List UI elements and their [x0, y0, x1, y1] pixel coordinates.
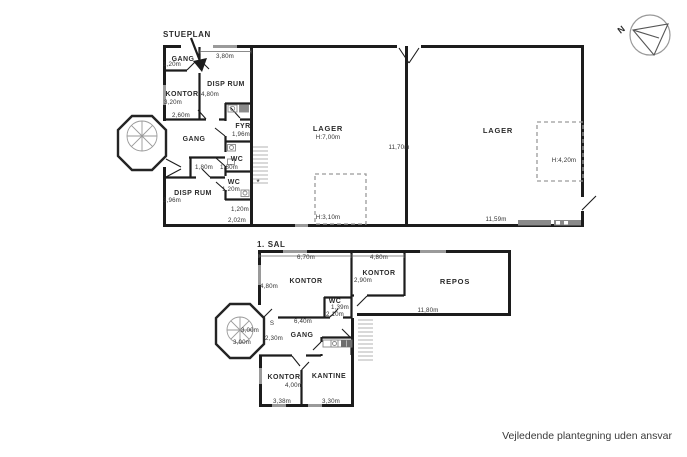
dim-kontor-s: 4,00m — [285, 382, 303, 389]
dim-gang: 2,30m — [265, 335, 283, 342]
dim-kontor-n-h: 2,90m — [354, 277, 372, 284]
room-label-disp-top: DISP RUM — [207, 81, 245, 88]
sink-icon — [331, 340, 338, 347]
dim-tower-a: 3,00m — [241, 327, 259, 334]
room-label-kontor-n: KONTOR — [363, 270, 396, 277]
room-label-lager-right: LAGER — [483, 126, 513, 135]
spiral-stair-treads — [127, 121, 157, 151]
room-label-disp-low: DISP RUM — [174, 190, 212, 197]
dim-wc1-b: 1,80m — [220, 164, 238, 171]
dim-gang-top: 1,20m — [163, 61, 181, 68]
boiler-icon — [240, 105, 249, 112]
gang-s-marker: S — [270, 320, 274, 327]
sal-stairs — [358, 320, 373, 360]
loading-gates — [518, 220, 581, 226]
dim-wc1-a: 1,80m — [195, 164, 213, 171]
room-label-kontor: KONTOR — [166, 91, 199, 98]
dim-repos-w: 11,80m — [417, 307, 438, 314]
stove-icon — [341, 340, 347, 347]
mezzanine-right-dashed — [537, 122, 583, 181]
room-label-kontor-nw: KONTOR — [290, 278, 323, 285]
sal-plan: 1. SAL 6,70m KONTOR 4,80m 4,80m KONTOR 2… — [216, 240, 511, 407]
room-label-kontor-s: KONTOR — [268, 374, 301, 381]
dim-lager-depth: 11,70m — [388, 144, 409, 151]
dim-wc-a: 1,39m — [331, 304, 349, 311]
room-label-gang-mid: GANG — [183, 136, 206, 143]
dim-wc2: 1,20m — [222, 186, 240, 193]
dim-lager-left-h: H:7,00m — [316, 134, 340, 141]
dim-disp-top-w: 3,80m — [216, 53, 234, 60]
dim-disp-low-h: 3,96m — [163, 197, 181, 204]
dim-kontor-nw-w: 6,70m — [297, 254, 315, 261]
dim-kontor-n-w: 4,80m — [370, 254, 388, 261]
room-label-wc1: WC — [231, 156, 244, 163]
dim-disp-top-h: 4,80m — [201, 91, 219, 98]
stueplan-plan: STUEPLAN GANG 1,20m 3,80m DISP RUM 4,80m… — [118, 30, 596, 227]
dim-lager-right-mezz: H:4,20m — [552, 157, 576, 164]
dim-lager-width: 11,59m — [485, 216, 506, 223]
disclaimer-note: Vejledende plantegning uden ansvar — [502, 430, 672, 442]
dim-low-b: 2,02m — [228, 217, 246, 224]
dim-low-a: 1,20m — [231, 206, 249, 213]
room-label-lager-left: LAGER — [313, 124, 343, 133]
dim-lager-left-mezz: H:3,10m — [316, 214, 340, 221]
dim-kontor-h: 3,20m — [164, 99, 182, 106]
dim-gang-w: 6,40m — [294, 318, 312, 325]
compass: N — [616, 15, 670, 55]
room-label-repos: REPOS — [440, 277, 470, 286]
gate-slot-2 — [564, 221, 568, 225]
wc2-toilet-bowl-icon — [243, 191, 247, 195]
dim-fyr: 1,96m — [232, 131, 250, 138]
gate-slot-1 — [556, 221, 560, 225]
room-label-gang: GANG — [291, 332, 314, 339]
gate-1 — [518, 220, 551, 226]
wc1-toilet-bowl-icon — [230, 146, 234, 150]
dim-kontor-w: 2,60m — [172, 112, 190, 119]
stueplan-stair-tower — [118, 116, 166, 170]
room-label-wc2: WC — [228, 179, 241, 186]
fridge-icon — [347, 340, 353, 347]
dim-kontor-nw-h: 4,80m — [260, 283, 278, 290]
dim-kantine-w: 3,30m — [322, 398, 340, 405]
stair-marker: * — [256, 178, 259, 187]
compass-north-label: N — [616, 24, 627, 36]
floorplan-page: STUEPLAN GANG 1,20m 3,80m DISP RUM 4,80m… — [0, 0, 687, 457]
dim-wc-b: 2,10m — [326, 311, 344, 318]
sal-title: 1. SAL — [257, 240, 286, 249]
stueplan-stairs — [253, 147, 268, 183]
stueplan-title: STUEPLAN — [163, 30, 211, 39]
floorplan-drawing: STUEPLAN GANG 1,20m 3,80m DISP RUM 4,80m… — [0, 0, 687, 457]
kitchen-counter — [323, 340, 353, 347]
room-label-kantine: KANTINE — [312, 373, 346, 380]
room-label-fyr: FYR — [235, 123, 250, 130]
dim-tower-b: 3,00m — [233, 339, 251, 346]
dim-kontor-s-w: 3,38m — [273, 398, 291, 405]
